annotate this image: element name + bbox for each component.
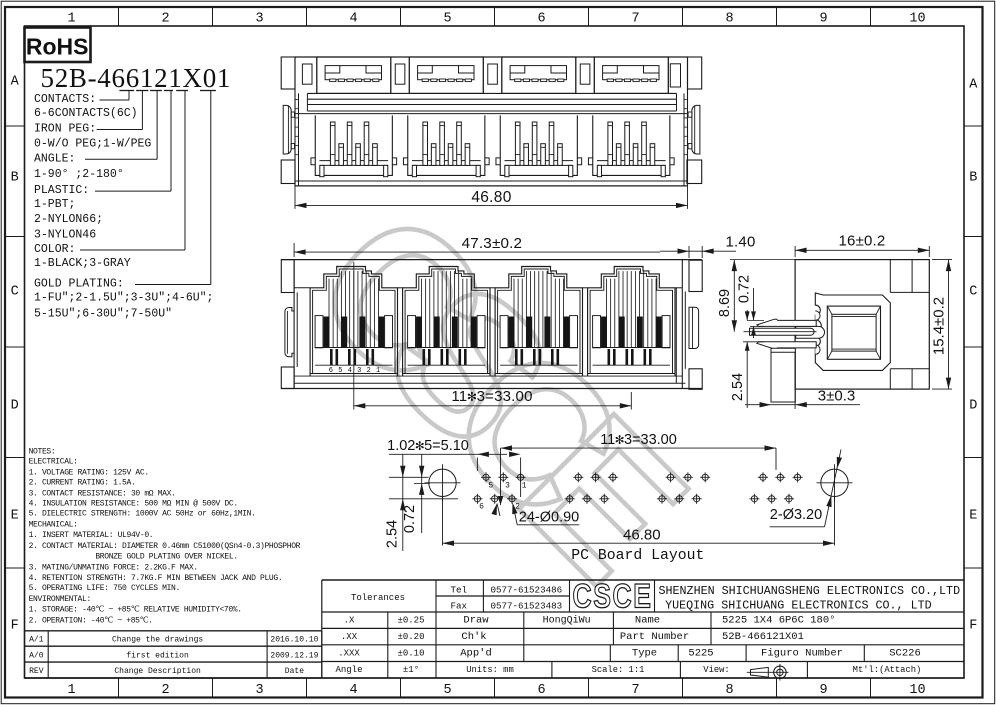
svg-text:.XX: .XX [341,632,358,642]
svg-text:Type: Type [632,647,657,659]
svg-text:4. RETENTION STRENGTH: 7.7KG.F: 4. RETENTION STRENGTH: 7.7KG.F MIN BETWE… [29,574,283,583]
svg-text:Name: Name [635,615,660,627]
svg-text:10: 10 [909,12,925,27]
svg-text:2009.12.19: 2009.12.19 [270,651,318,660]
svg-text:CSCE: CSCE [573,577,653,615]
svg-text:SHENZHEN SHICHUANGSHENG ELECTR: SHENZHEN SHICHUANGSHENG ELECTRONICS CO.,… [659,584,961,598]
svg-text:9: 9 [819,12,827,27]
svg-text:2: 2 [161,12,169,27]
svg-text:Change the drawings: Change the drawings [112,636,203,645]
svg-text:A: A [969,78,978,93]
svg-text:3: 3 [357,367,361,375]
svg-text:2. OPERATION: -40℃ ~ +85℃.: 2. OPERATION: -40℃ ~ +85℃. [29,616,153,625]
svg-text:6-6CONTACTS(6C): 6-6CONTACTS(6C) [34,107,138,120]
svg-text:4: 4 [349,12,357,27]
svg-text:3±0.3: 3±0.3 [818,388,855,405]
svg-text:Scale: 1:1: Scale: 1:1 [592,665,645,675]
svg-text:Draw: Draw [463,615,489,627]
svg-text:5: 5 [443,12,451,27]
svg-text:Part Number: Part Number [620,631,689,643]
svg-text:±0.25: ±0.25 [397,616,424,626]
svg-text:2. CURRENT RATING: 1.5A.: 2. CURRENT RATING: 1.5A. [29,479,136,488]
svg-text:3. MATING/UNMATING FORCE: 2.2K: 3. MATING/UNMATING FORCE: 2.2KG.F MAX. [29,564,198,573]
svg-text:5225: 5225 [688,647,713,659]
svg-text:.XXX: .XXX [338,648,360,658]
svg-text:A/1: A/1 [29,636,44,645]
svg-text:B: B [969,171,977,186]
svg-text:0.72: 0.72 [737,275,753,303]
svg-text:52B-466121X01: 52B-466121X01 [722,631,804,643]
svg-text:6: 6 [537,683,545,698]
svg-text:Ch'k: Ch'k [461,631,486,643]
svg-text:PLASTIC:: PLASTIC: [34,184,89,197]
svg-text:4: 4 [349,683,357,698]
svg-text:1. VOLTAGE RATING: 125V AC.: 1. VOLTAGE RATING: 125V AC. [29,468,149,477]
svg-text:6: 6 [537,12,545,27]
svg-text:47.3±0.2: 47.3±0.2 [462,235,523,252]
svg-text:App'd: App'd [460,647,492,659]
svg-text:1: 1 [376,367,380,375]
svg-text:2.54: 2.54 [730,373,746,401]
svg-text:7: 7 [631,683,639,698]
svg-text:ANGLE:: ANGLE: [34,152,75,165]
svg-text:REV: REV [29,667,44,676]
svg-text:11✻3=33.00: 11✻3=33.00 [451,388,532,405]
svg-text:8.69: 8.69 [717,289,733,317]
svg-text:Change Description: Change Description [114,667,201,676]
svg-text:1-FU″;2-1.5U″;3-3U″;4-6U″;: 1-FU″;2-1.5U″;3-3U″;4-6U″; [34,291,213,304]
svg-text:5225 1X4 6P6C 180°: 5225 1X4 6P6C 180° [722,615,835,627]
svg-text:E: E [969,509,977,524]
svg-text:1.02✻5=5.10: 1.02✻5=5.10 [387,438,469,454]
svg-text:Units: mm: Units: mm [466,665,514,675]
svg-text:±0.20: ±0.20 [397,632,424,642]
svg-text:Angle: Angle [335,665,362,675]
svg-text:11✻3=33.00: 11✻3=33.00 [600,432,677,448]
svg-text:10: 10 [909,683,925,698]
svg-text:0577-61523486: 0577-61523486 [490,585,562,596]
svg-text:Mt'l:(Attach): Mt'l:(Attach) [853,665,922,675]
svg-text:1. STORAGE: -40℃ ~ +85℃ RELATI: 1. STORAGE: -40℃ ~ +85℃ RELATIVE HUMIDIT… [29,606,242,615]
svg-text:2: 2 [367,367,371,375]
svg-text:3: 3 [505,481,510,490]
svg-text:6: 6 [329,367,333,375]
svg-text:3. CONTACT RESISTANCE: 30 mΩ M: 3. CONTACT RESISTANCE: 30 mΩ MAX. [29,490,176,499]
svg-text:CONTACTS:: CONTACTS: [34,93,96,106]
svg-text:Fax: Fax [451,601,468,612]
svg-text:IRON PEG:: IRON PEG: [34,123,96,136]
svg-text:ENVIRONMENTAL:: ENVIRONMENTAL: [29,595,91,604]
svg-text:A/0: A/0 [29,651,44,660]
svg-text:BRONZE GOLD PLATING OVER NICKE: BRONZE GOLD PLATING OVER NICKEL. [29,552,238,561]
svg-text:2-Ø3.20: 2-Ø3.20 [770,507,822,523]
svg-text:2. CONTACT MATERIAL: DIAMETER: 2. CONTACT MATERIAL: DIAMETER 0.46mm C51… [29,542,301,551]
svg-text:46.80: 46.80 [471,189,511,206]
svg-text:3-NYLON46: 3-NYLON46 [34,229,96,242]
svg-text:16±0.2: 16±0.2 [839,233,886,250]
svg-text:A: A [11,75,20,90]
svg-text:3: 3 [255,683,263,698]
svg-text:Date: Date [285,667,304,676]
svg-text:.X: .X [344,616,355,626]
svg-text:Figuro Number: Figuro Number [761,647,843,659]
svg-text:8: 8 [725,683,733,698]
svg-text:3: 3 [255,12,263,27]
svg-text:46.80: 46.80 [623,527,661,544]
svg-text:NOTES:: NOTES: [29,447,56,456]
svg-text:1-90° ;2-180°: 1-90° ;2-180° [34,168,124,181]
svg-text:Tolerances: Tolerances [351,593,405,603]
svg-text:5: 5 [488,481,493,490]
svg-text:5: 5 [338,367,342,375]
svg-text:1-BLACK;3-GRAY: 1-BLACK;3-GRAY [34,257,131,270]
svg-text:YUEQING SHICHUANG ELECTRONICS: YUEQING SHICHUANG ELECTRONICS CO., LTD [665,599,932,613]
svg-text:View:: View: [703,665,729,675]
svg-text:6: 6 [479,503,484,512]
svg-text:GOLD PLATING:: GOLD PLATING: [34,278,124,291]
svg-text:0.72: 0.72 [402,505,418,533]
svg-text:PC Board Layout: PC Board Layout [571,548,704,564]
svg-text:4. INSULATION RESISTANCE: 500: 4. INSULATION RESISTANCE: 500 MΩ MIN @ 5… [29,500,238,509]
svg-text:2: 2 [161,683,169,698]
svg-text:4: 4 [348,367,352,375]
svg-text:B: B [11,171,19,186]
svg-text:±1°: ±1° [403,665,419,675]
svg-text:52B-466121X01: 52B-466121X01 [41,63,232,93]
svg-text:5. OPERATING LIFE: 750 CYCLES: 5. OPERATING LIFE: 750 CYCLES MIN. [29,584,180,593]
svg-text:E: E [11,509,19,524]
svg-text:1-PBT;: 1-PBT; [34,198,75,211]
svg-text:HongQiWu: HongQiWu [543,615,591,627]
svg-text:SC226: SC226 [889,647,921,659]
svg-text:COLOR:: COLOR: [34,243,75,256]
svg-text:D: D [11,399,19,414]
svg-text:5: 5 [443,683,451,698]
svg-text:RoHS: RoHS [26,34,89,60]
svg-text:F: F [969,619,977,634]
svg-text:MECHANICAL:: MECHANICAL: [29,521,78,530]
svg-text:D: D [969,399,977,414]
svg-text:1: 1 [522,481,527,490]
svg-text:1. INSERT MATERIAL: UL94V-0.: 1. INSERT MATERIAL: UL94V-0. [29,531,154,540]
svg-text:Tel: Tel [451,585,468,596]
svg-text:±0.10: ±0.10 [397,648,424,658]
svg-text:8: 8 [725,12,733,27]
svg-text:1: 1 [67,12,75,27]
svg-text:2016.10.10: 2016.10.10 [270,636,318,645]
svg-text:7: 7 [631,12,639,27]
svg-text:15.4±0.2: 15.4±0.2 [931,297,948,355]
svg-text:5. DIELECTRIC STRENGTH: 1000V: 5. DIELECTRIC STRENGTH: 1000V AC 50Hz or… [29,510,256,519]
svg-text:0577-61523483: 0577-61523483 [490,601,562,612]
svg-text:C: C [969,285,977,300]
svg-text:first edition: first edition [126,651,189,660]
svg-text:2.54: 2.54 [384,520,400,548]
svg-text:24-Ø0.90: 24-Ø0.90 [519,510,579,526]
svg-text:9: 9 [819,683,827,698]
svg-text:5-15U″;6-30U″;7-50U″: 5-15U″;6-30U″;7-50U″ [34,307,172,320]
svg-text:1.40: 1.40 [726,234,756,251]
svg-text:F: F [11,619,19,634]
svg-text:C: C [11,285,19,300]
svg-text:2-NYLON66;: 2-NYLON66; [34,213,103,226]
svg-text:ELECTRICAL:: ELECTRICAL: [29,458,78,467]
svg-text:0-W/O PEG;1-W/PEG: 0-W/O PEG;1-W/PEG [34,138,151,151]
svg-text:1: 1 [67,683,75,698]
